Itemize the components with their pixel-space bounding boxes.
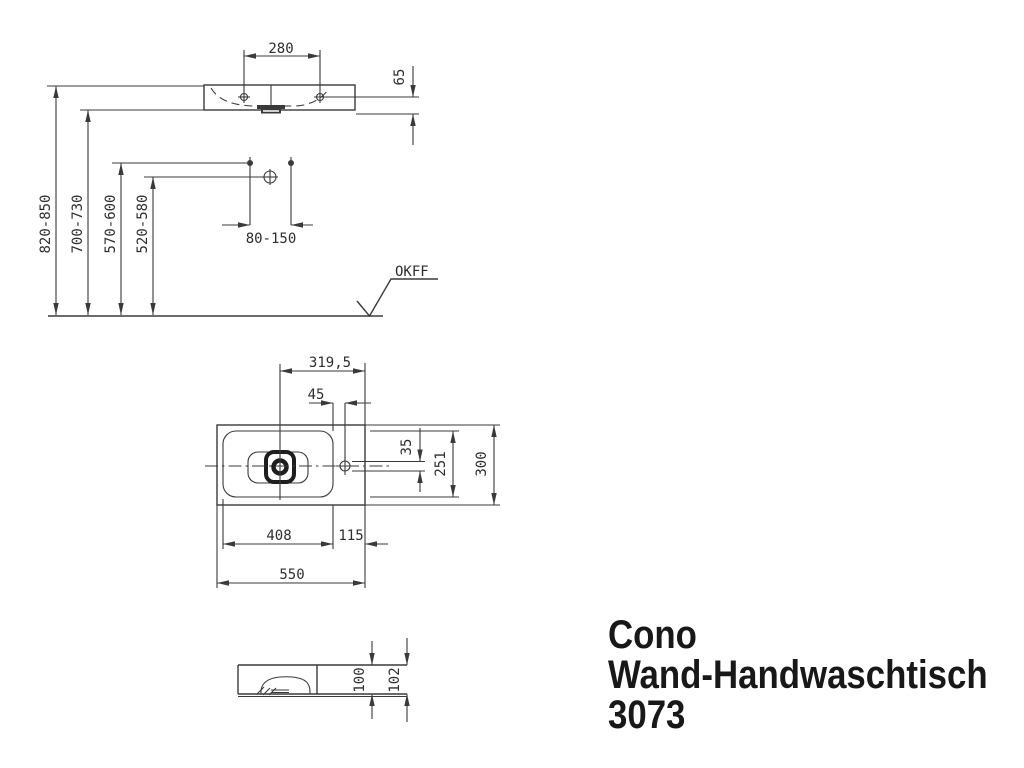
dim-tap-hole-offset-label: 35 bbox=[399, 439, 415, 456]
dim-deck-width-label: 115 bbox=[338, 528, 363, 544]
floor-reference-label: OKFF bbox=[395, 264, 429, 280]
basin-front-outline bbox=[204, 85, 355, 114]
bowl-profile bbox=[261, 677, 310, 694]
basin-plan-outline bbox=[205, 364, 390, 505]
drain-front-upper bbox=[257, 105, 285, 109]
product-model: 3073 bbox=[608, 695, 988, 735]
dim-height-fixing-bolts-label: 570-600 bbox=[103, 194, 119, 253]
fixing-bolts-and-connection bbox=[247, 157, 294, 225]
dim-tap-hole-offset: 35 bbox=[352, 428, 425, 492]
dim-total-width-label: 550 bbox=[279, 567, 304, 583]
dim-drain-to-right-edge-label: 319,5 bbox=[309, 355, 351, 371]
product-type: Wand-Handwaschtisch bbox=[608, 655, 988, 695]
dim-inner-width-label: 408 bbox=[266, 528, 291, 544]
dim-tap-hole-spacing: 280 bbox=[244, 41, 320, 103]
dim-body-height-label: 100 bbox=[352, 667, 368, 692]
dim-inner-width: 408 bbox=[223, 499, 333, 549]
dim-total-width: 550 bbox=[217, 505, 365, 588]
section-view: 100 102 bbox=[238, 638, 407, 722]
dim-body-height: 100 bbox=[352, 641, 372, 719]
dim-bolt-spread: 80-150 bbox=[222, 225, 313, 247]
dim-rim-height-label: 65 bbox=[392, 69, 408, 86]
fixing-bolt-right-icon bbox=[288, 160, 294, 166]
plan-view: 319,5 45 35 251 300 bbox=[205, 355, 500, 588]
fixing-bolt-left-icon bbox=[247, 160, 253, 166]
dim-height-water-connection-label: 520-580 bbox=[135, 194, 151, 253]
dim-height-bottom-edge-label: 700-730 bbox=[70, 194, 86, 253]
dim-tap-hole-spacing-label: 280 bbox=[268, 41, 293, 57]
front-elevation-view: 280 65 820-850 700-730 570-600 520-580 bbox=[38, 41, 438, 316]
product-series: Cono bbox=[608, 615, 988, 655]
dim-tap-hole-inset-label: 45 bbox=[308, 387, 325, 403]
dim-total-depth-label: 300 bbox=[474, 451, 490, 476]
dim-inner-depth-label: 251 bbox=[433, 451, 449, 476]
dim-height-top-edge-label: 820-850 bbox=[38, 194, 54, 253]
basin-rim-hidden-line bbox=[211, 88, 328, 106]
dim-deck-width: 115 bbox=[338, 528, 388, 544]
product-title: Cono Wand-Handwaschtisch 3073 bbox=[608, 615, 988, 735]
dim-total-height: 102 bbox=[387, 638, 407, 722]
basin-section-outline bbox=[238, 665, 407, 697]
dim-tap-hole-inset: 45 bbox=[308, 387, 371, 460]
floor-level-symbol bbox=[357, 279, 438, 316]
dim-bolt-spread-label: 80-150 bbox=[246, 231, 297, 247]
floor-reference-mark: OKFF bbox=[357, 264, 438, 316]
dim-mounting-heights: 820-850 700-730 570-600 520-580 bbox=[38, 86, 264, 315]
dim-total-height-label: 102 bbox=[387, 667, 403, 692]
dim-rim-height: 65 bbox=[314, 66, 419, 145]
